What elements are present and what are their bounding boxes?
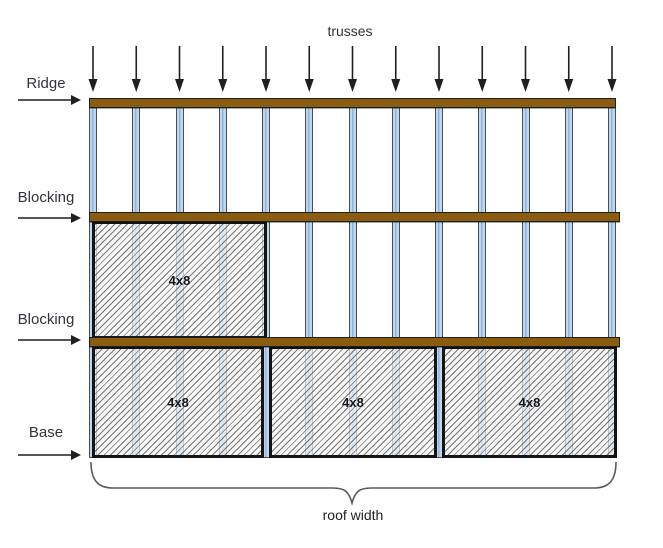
panel-4x8-base-center: 4x8 (269, 346, 437, 458)
down-arrow-icon (391, 79, 400, 92)
down-arrow-icon (521, 79, 530, 92)
panel-size-label: 4x8 (342, 395, 364, 410)
load-arrows-group (89, 46, 617, 92)
down-arrow-icon (262, 79, 271, 92)
roof-width-brace (91, 462, 616, 503)
ridge-label: Ridge (4, 75, 88, 92)
roof-sheathing-diagram: trusses Ridge Blocking Blocking Base 4x8… (0, 0, 663, 548)
base-pointer-arrow-icon (18, 450, 81, 460)
blocking-pointer-arrow-icon (18, 335, 81, 345)
blocking-label-2: Blocking (4, 311, 88, 328)
ridge-board (89, 98, 616, 108)
down-arrow-icon (132, 79, 141, 92)
roof-width-label: roof width (293, 507, 413, 523)
panel-4x8-middle: 4x8 (92, 221, 267, 339)
down-arrow-icon (175, 79, 184, 92)
panel-size-label: 4x8 (167, 395, 189, 410)
down-arrow-icon (435, 79, 444, 92)
base-label: Base (4, 424, 88, 441)
blocking-board-1 (89, 212, 620, 222)
ridge-pointer-arrow-icon (18, 95, 81, 105)
down-arrow-icon (564, 79, 573, 92)
down-arrow-icon (89, 79, 98, 92)
panel-size-label: 4x8 (519, 395, 541, 410)
down-arrow-icon (608, 79, 617, 92)
panel-4x8-base-left: 4x8 (92, 346, 264, 458)
down-arrow-icon (218, 79, 227, 92)
blocking-label-1: Blocking (4, 189, 88, 206)
blocking-board-2 (89, 337, 620, 347)
trusses-label: trusses (290, 23, 410, 39)
blocking-pointer-arrow-icon (18, 213, 81, 223)
panel-size-label: 4x8 (169, 273, 191, 288)
down-arrow-icon (305, 79, 314, 92)
down-arrow-icon (348, 79, 357, 92)
down-arrow-icon (478, 79, 487, 92)
panel-4x8-base-right: 4x8 (442, 346, 617, 458)
